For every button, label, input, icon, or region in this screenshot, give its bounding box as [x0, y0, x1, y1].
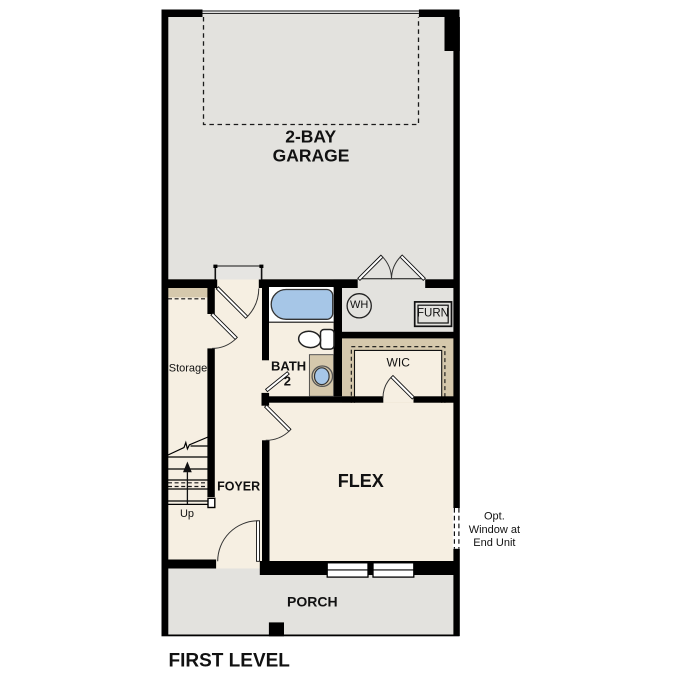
svg-text:Storage: Storage: [169, 363, 208, 375]
svg-text:FLEX: FLEX: [338, 471, 384, 491]
svg-text:Opt.: Opt.: [484, 511, 505, 523]
svg-text:WIC: WIC: [387, 356, 411, 370]
svg-text:FOYER: FOYER: [217, 479, 260, 493]
svg-text:GARAGE: GARAGE: [273, 146, 350, 166]
svg-text:FURN: FURN: [417, 308, 449, 320]
svg-text:WH: WH: [350, 299, 368, 311]
svg-text:PORCH: PORCH: [287, 594, 338, 610]
svg-text:End Unit: End Unit: [473, 537, 515, 549]
svg-text:2: 2: [284, 373, 291, 388]
svg-text:FIRST LEVEL: FIRST LEVEL: [169, 650, 291, 671]
svg-text:BATH: BATH: [271, 359, 306, 374]
svg-text:Window at: Window at: [469, 524, 520, 536]
svg-text:2-BAY: 2-BAY: [285, 126, 336, 146]
svg-text:Up: Up: [180, 508, 194, 520]
